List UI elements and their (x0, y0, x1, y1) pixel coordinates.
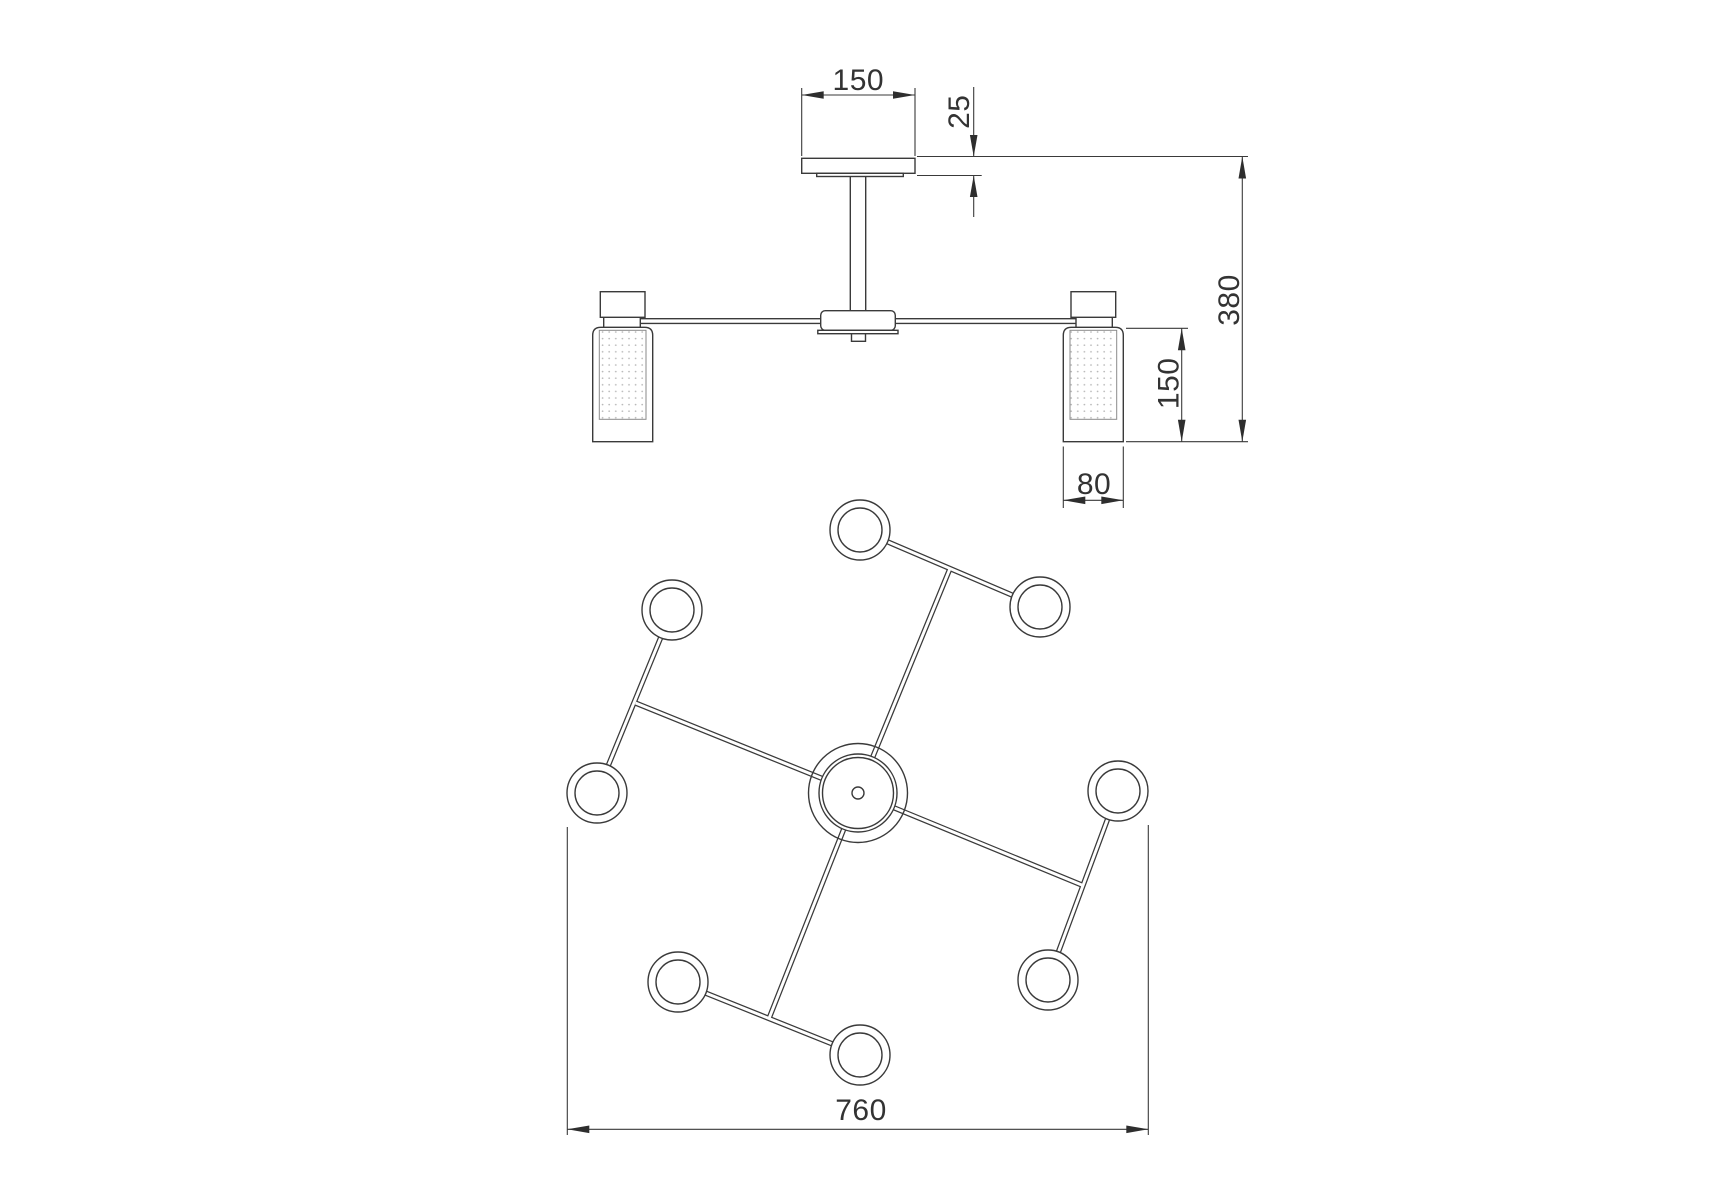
dim-canopy-width: 150 (802, 64, 915, 156)
lamp-circle-top-left (642, 580, 702, 640)
dim-canopy-width-label: 150 (833, 64, 885, 97)
dim-shade-height-label: 150 (1152, 358, 1185, 410)
central-hub-elevation (818, 311, 898, 342)
left-socket (600, 292, 645, 318)
lamp-circle-bottom (830, 1025, 890, 1085)
left-shade-mesh (599, 330, 646, 419)
right-neck (1076, 317, 1112, 327)
dim-overall-width-label: 760 (835, 1094, 887, 1127)
right-socket (1071, 292, 1116, 318)
dim-canopy-thickness-label: 25 (943, 95, 976, 129)
dim-shade-width: 80 (1063, 447, 1123, 509)
dim-canopy-thickness: 25 (917, 87, 1248, 217)
lamp-circle-bottom-left (648, 952, 708, 1012)
ceiling-canopy (802, 158, 915, 176)
central-hub-plan (819, 754, 897, 832)
lamp-circle-top (830, 500, 890, 560)
lamp-circle-bottom-right (1018, 950, 1078, 1010)
lamp-circle-left (567, 763, 627, 823)
right-lamp (1063, 292, 1123, 442)
technical-drawing-page: 150 25 380 150 (0, 0, 1715, 1200)
lamp-circle-right (1088, 761, 1148, 821)
left-neck (604, 317, 641, 327)
lamp-circle-top-right (1010, 577, 1070, 637)
mounting-stem (850, 177, 865, 313)
left-lamp (593, 292, 653, 442)
dim-shade-height: 150 (1126, 328, 1188, 441)
dim-fixture-height: 380 (1126, 157, 1248, 442)
elevation-view: 150 25 380 150 (593, 64, 1248, 508)
technical-drawing: 150 25 380 150 (0, 0, 1715, 1200)
right-shade-mesh (1070, 330, 1117, 419)
dim-shade-width-label: 80 (1077, 468, 1111, 501)
plan-view: 760 (567, 500, 1148, 1135)
dim-fixture-height-label: 380 (1213, 274, 1246, 326)
